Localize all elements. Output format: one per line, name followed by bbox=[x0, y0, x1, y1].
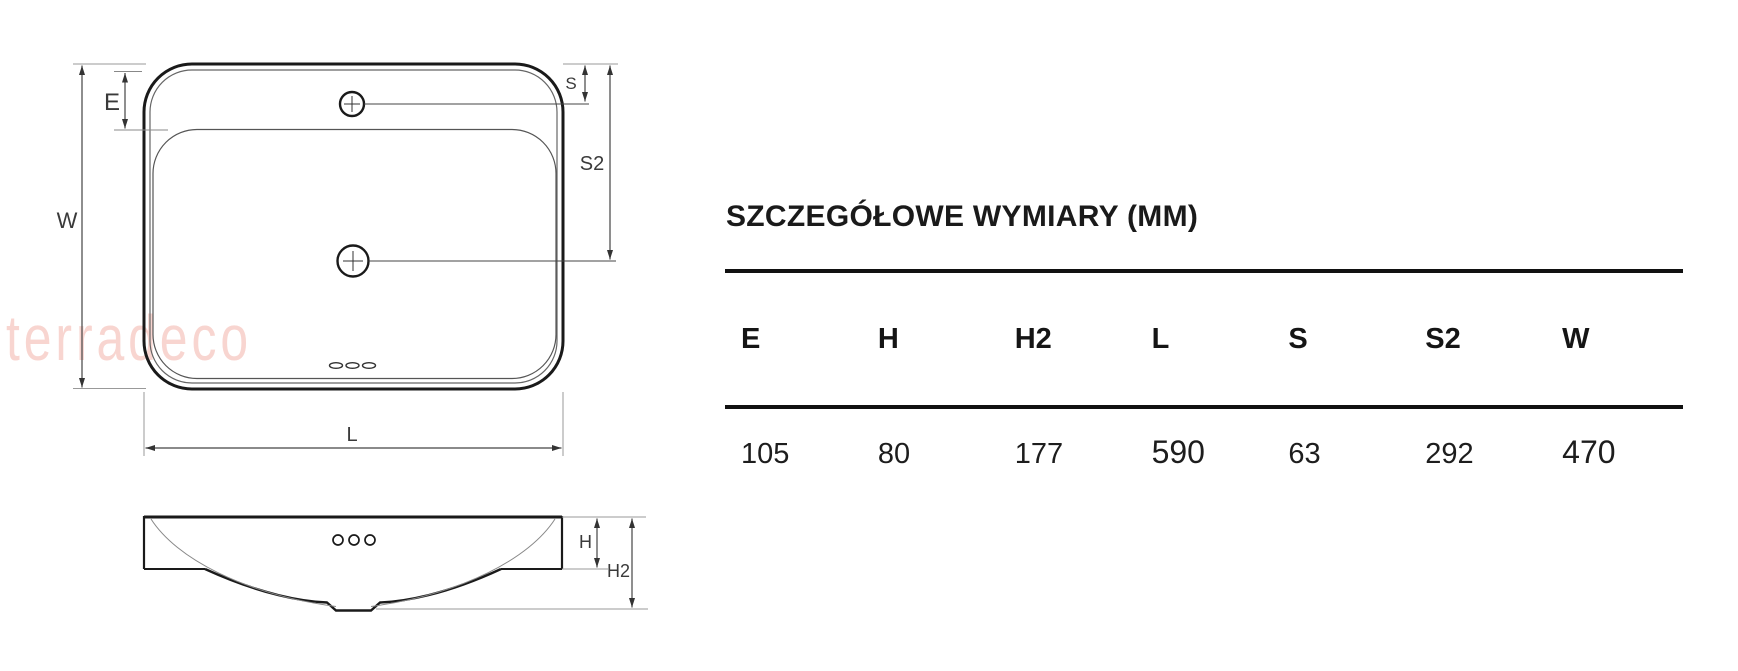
table-value-row: 105 80 177 590 63 292 470 bbox=[725, 409, 1683, 475]
s2-dimension: S2 bbox=[580, 66, 610, 260]
faucet-hole bbox=[340, 92, 589, 116]
side-bowl-backline-right bbox=[371, 519, 555, 607]
s-dimension: S bbox=[565, 66, 585, 102]
basin-outer-outline bbox=[144, 64, 563, 389]
h-dimension: H bbox=[579, 519, 597, 568]
s-dimension-label: S bbox=[565, 74, 576, 93]
table-value-cell: 177 bbox=[999, 438, 1136, 475]
table-header-cell: H2 bbox=[999, 323, 1136, 356]
side-bowl-profile bbox=[205, 569, 501, 611]
e-dimension: E bbox=[104, 72, 168, 131]
table-value-cell: 80 bbox=[862, 438, 999, 475]
drain-hole bbox=[338, 246, 617, 277]
section-title: SZCZEGÓŁOWE WYMIARY (MM) bbox=[726, 200, 1198, 234]
table-value-cell: 590 bbox=[1136, 434, 1273, 471]
w-dimension-label: W bbox=[57, 208, 78, 233]
table-header-cell: S2 bbox=[1409, 323, 1546, 356]
table-value-cell: 105 bbox=[725, 438, 862, 475]
table-header-cell: S bbox=[1272, 323, 1409, 356]
side-bowl-backline-left bbox=[151, 519, 336, 607]
spec-sheet: terradeco bbox=[0, 0, 1738, 671]
table-header-row: E H H2 L S S2 W bbox=[725, 273, 1683, 405]
side-faucet-holes bbox=[333, 535, 375, 545]
table-header-cell: H bbox=[862, 323, 999, 356]
h-dimension-label: H bbox=[579, 532, 592, 552]
side-view-dimensions: H H2 bbox=[376, 517, 648, 609]
table-header-cell: W bbox=[1546, 323, 1683, 356]
h2-dimension: H2 bbox=[607, 519, 632, 608]
l-dimension-label: L bbox=[346, 424, 357, 446]
w-dimension: W bbox=[57, 64, 146, 389]
s2-dimension-label: S2 bbox=[580, 153, 604, 175]
technical-drawing: W E S S2 bbox=[0, 0, 700, 671]
e-dimension-label: E bbox=[104, 89, 120, 116]
table-value-cell: 292 bbox=[1409, 438, 1546, 475]
overflow-holes bbox=[330, 363, 376, 369]
basin-bowl-outline bbox=[153, 130, 556, 379]
dimensions-table: E H H2 L S S2 W 105 80 177 590 63 292 47… bbox=[725, 269, 1683, 475]
h2-dimension-label: H2 bbox=[607, 561, 630, 581]
basin-top-view bbox=[144, 64, 616, 389]
table-value-cell: 470 bbox=[1546, 434, 1683, 471]
table-value-cell: 63 bbox=[1272, 438, 1409, 475]
table-header-cell: E bbox=[725, 323, 862, 356]
table-header-cell: L bbox=[1136, 323, 1273, 356]
l-dimension: L bbox=[144, 392, 563, 456]
basin-side-view bbox=[144, 516, 562, 611]
